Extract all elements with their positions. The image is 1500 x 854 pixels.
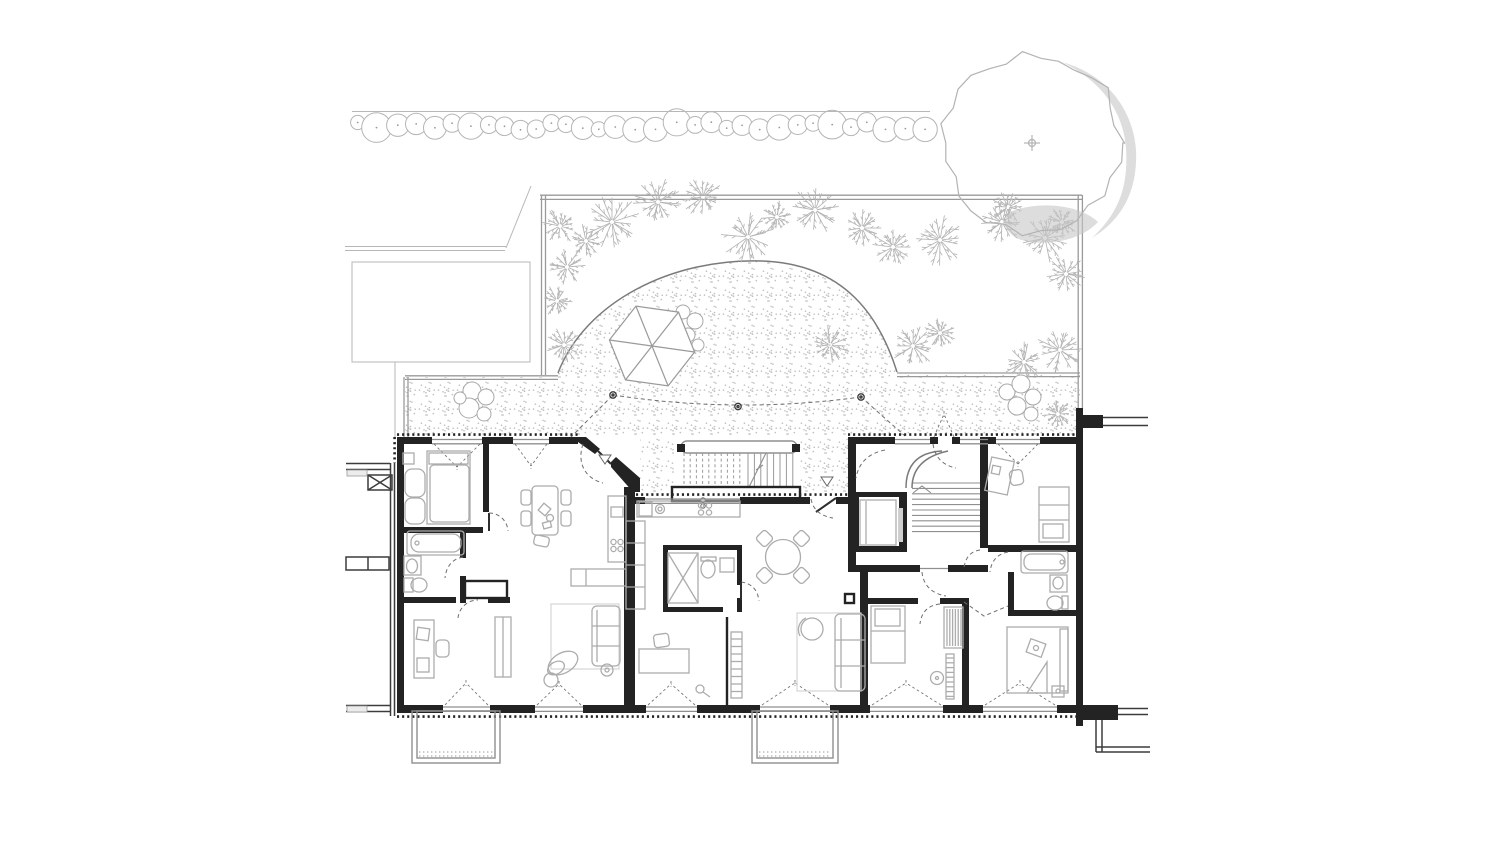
floor-plan-drawing <box>0 0 1500 854</box>
right-attachments <box>1083 415 1150 752</box>
hedge-row <box>351 109 938 143</box>
large-tree <box>941 52 1136 243</box>
neighbor-left-building <box>346 463 395 716</box>
floor-plan-viewport <box>0 0 1500 854</box>
